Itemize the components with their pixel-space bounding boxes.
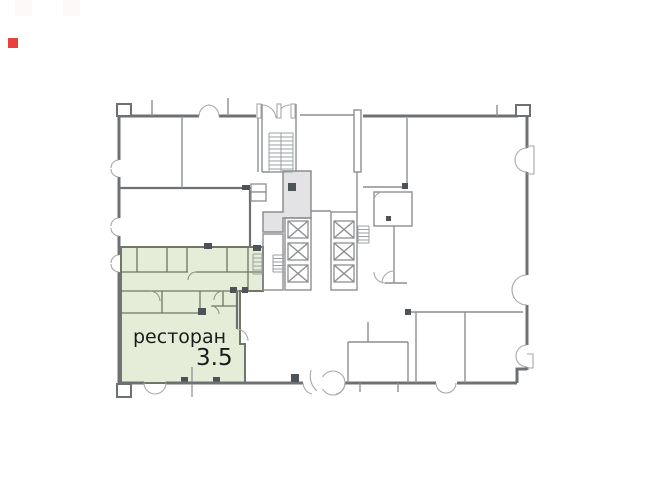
corner-bump (117, 384, 131, 397)
wall-marker (386, 216, 391, 221)
floor-plan-svg: ресторан 3.5 (0, 0, 653, 489)
corridor-wall (354, 110, 361, 172)
shaft-box (251, 184, 266, 192)
entrance-doors (303, 370, 345, 395)
shaft-box (251, 192, 266, 201)
main-stairwell (269, 133, 293, 172)
restaurant-area-value: 3.5 (196, 345, 233, 371)
restaurant-outline[interactable] (121, 247, 263, 383)
small-room (374, 192, 412, 226)
wall-marker (291, 374, 299, 382)
restaurant-area[interactable]: ресторан 3.5 (121, 243, 263, 383)
faint-artifacts (15, 0, 80, 16)
floor-plan-canvas: ресторан 3.5 (0, 0, 653, 489)
red-marker (8, 38, 18, 48)
wall-marker (405, 309, 411, 315)
faint-artifact (63, 0, 80, 16)
wall-marker (242, 185, 250, 190)
corner-bump (516, 105, 530, 116)
elevator-shafts (288, 221, 354, 282)
lobby-marker (288, 183, 296, 191)
wall-marker (402, 183, 408, 189)
elevator-core (273, 212, 369, 290)
side-stair-right (358, 226, 369, 243)
faint-artifact (15, 0, 32, 16)
corner-bump (117, 104, 131, 116)
